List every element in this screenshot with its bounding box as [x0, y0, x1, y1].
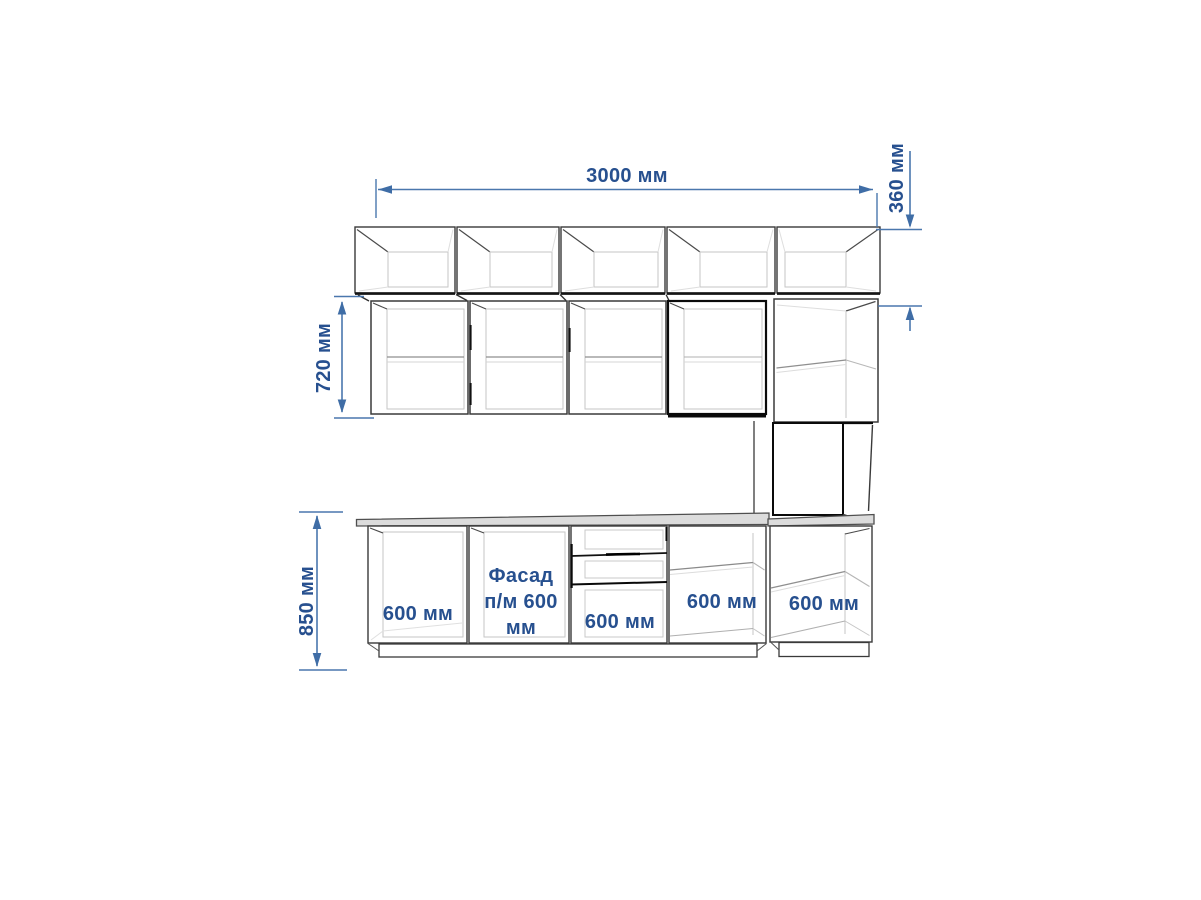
- wall-cabinet: [569, 301, 666, 414]
- total-width-label: 3000 мм: [527, 164, 727, 188]
- kitchen-elevation-drawing: 3000 мм 360 мм 720 мм 850 мм 600 мм Фаса…: [0, 0, 1201, 900]
- base-plinth: [368, 644, 767, 658]
- base-cabinet-label: 600 мм: [570, 610, 670, 634]
- wall-cabinet: [371, 301, 468, 414]
- dimension-wall-row-height: [334, 297, 374, 419]
- base-cabinet-label: 600 мм: [774, 592, 874, 616]
- base-cabinet-label: 600 мм: [368, 602, 468, 626]
- right-base-plinth: [771, 642, 870, 657]
- column-wall-cabinet: [774, 299, 878, 422]
- wall-cabinet-highlighted: [668, 301, 766, 416]
- tall-column: [754, 299, 878, 522]
- base-cabinet-sink-label: Фасад п/м 600 мм: [477, 563, 565, 641]
- wall-cabinet-row: [371, 301, 766, 416]
- top-cabinet-row: [355, 227, 880, 301]
- countertop-right: [768, 515, 874, 527]
- top-cabinet-corner: [777, 227, 880, 294]
- countertop: [357, 513, 770, 526]
- top-cabinet: [667, 227, 775, 294]
- wall-cabinet: [470, 301, 567, 414]
- base-cabinet-open-shelves: [669, 526, 766, 643]
- base-cabinet-label: 600 мм: [672, 590, 772, 614]
- top-cabinet: [561, 227, 665, 294]
- wall-row-height-label: 720 мм: [312, 298, 336, 418]
- open-niche: [754, 421, 873, 522]
- base-row-height-label: 850 мм: [295, 541, 319, 661]
- top-cabinet: [355, 227, 455, 294]
- top-row-height-label: 360 мм: [885, 118, 909, 238]
- top-cabinet: [457, 227, 559, 294]
- cabinet-linework: [0, 0, 1201, 900]
